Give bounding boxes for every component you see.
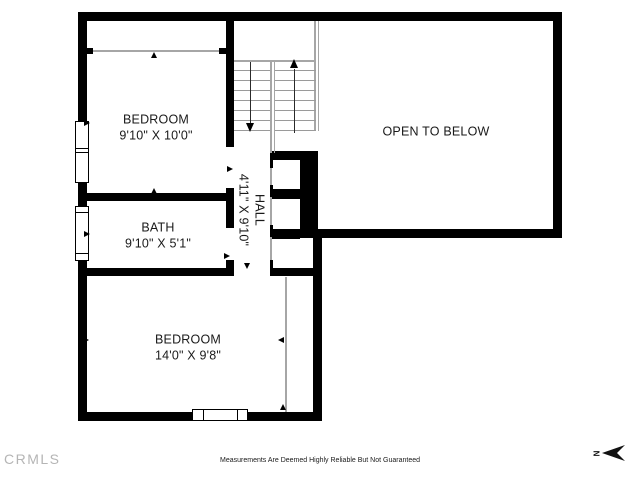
exterior-wall-top [78,12,562,21]
closet-jamb [85,48,93,54]
tick-marker [280,404,286,410]
wall-bath-bedroom2 [87,268,230,276]
tick-marker [227,166,233,172]
stairs-down-arrow-icon [246,123,254,132]
north-label: N [591,450,600,456]
room-name: HALL [251,174,267,246]
window-mullion [76,212,88,213]
hall-closet-front-line [270,160,272,268]
north-arrow-icon [600,444,626,462]
wall-closet-divider-1 [272,189,300,199]
tick-marker [84,120,90,126]
window-mullion [237,410,238,420]
room-hall: HALL 4'11" X 9'10" [236,174,267,246]
closet-jamb [270,260,273,268]
room-bedroom-1: BEDROOM 9'10" X 10'0" [119,113,192,144]
room-open-to-below: OPEN TO BELOW [382,124,489,140]
wall-mid-vertical [300,151,318,238]
window-mullion [76,253,88,254]
floor-plan: BEDROOM 9'10" X 10'0" BATH 9'10" X 5'1" … [0,0,640,480]
tick-marker [278,337,284,343]
window-mullion [76,152,88,153]
room-dims: 4'11" X 9'10" [236,174,252,246]
stair-flight-right [275,61,316,134]
tick-marker [280,268,286,274]
closet-jamb [270,160,273,168]
wall-bedroom1-hall-upper [226,21,234,147]
tick-marker [84,231,90,237]
room-name: OPEN TO BELOW [382,124,489,140]
stairs-up-arrow-stem [294,69,295,133]
exterior-wall-right-lower [313,229,322,421]
tick-marker [83,337,89,343]
wall-bath-top [87,193,234,201]
disclaimer-text: Measurements Are Deemed Highly Reliable … [0,457,640,464]
stair-divider-line [274,61,276,153]
stair-divider-line [270,61,272,153]
stairs-up-arrow-icon [290,59,298,68]
bedroom2-closet-line [285,277,287,412]
tick-marker [151,188,157,194]
wall-closet-divider-2 [272,229,300,239]
window-bedroom2 [192,409,248,421]
tick-marker [151,52,157,58]
room-dims: 9'10" X 10'0" [119,128,192,144]
exterior-wall-right-upper [553,12,562,238]
window-mullion [203,410,204,420]
north-indicator: N [593,444,626,462]
room-dims: 14'0" X 9'8" [155,348,221,364]
room-bath: BATH 9'10" X 5'1" [125,221,191,252]
room-name: BEDROOM [155,333,221,349]
wall-closet-bedroom2 [270,268,313,276]
room-bedroom-2: BEDROOM 14'0" X 9'8" [155,333,221,364]
stairs-down-arrow-stem [250,62,251,124]
tick-marker [224,253,230,259]
window-mullion [76,148,88,149]
closet-jamb [219,48,227,54]
open-area-bottom-wall [313,229,562,238]
room-name: BEDROOM [119,113,192,129]
stairwell-edge-line [318,21,320,131]
closet-jamb [270,185,273,197]
room-name: BATH [125,221,191,237]
room-dims: 9'10" X 5'1" [125,236,191,252]
closet-jamb [270,225,273,237]
tick-marker [244,263,250,269]
